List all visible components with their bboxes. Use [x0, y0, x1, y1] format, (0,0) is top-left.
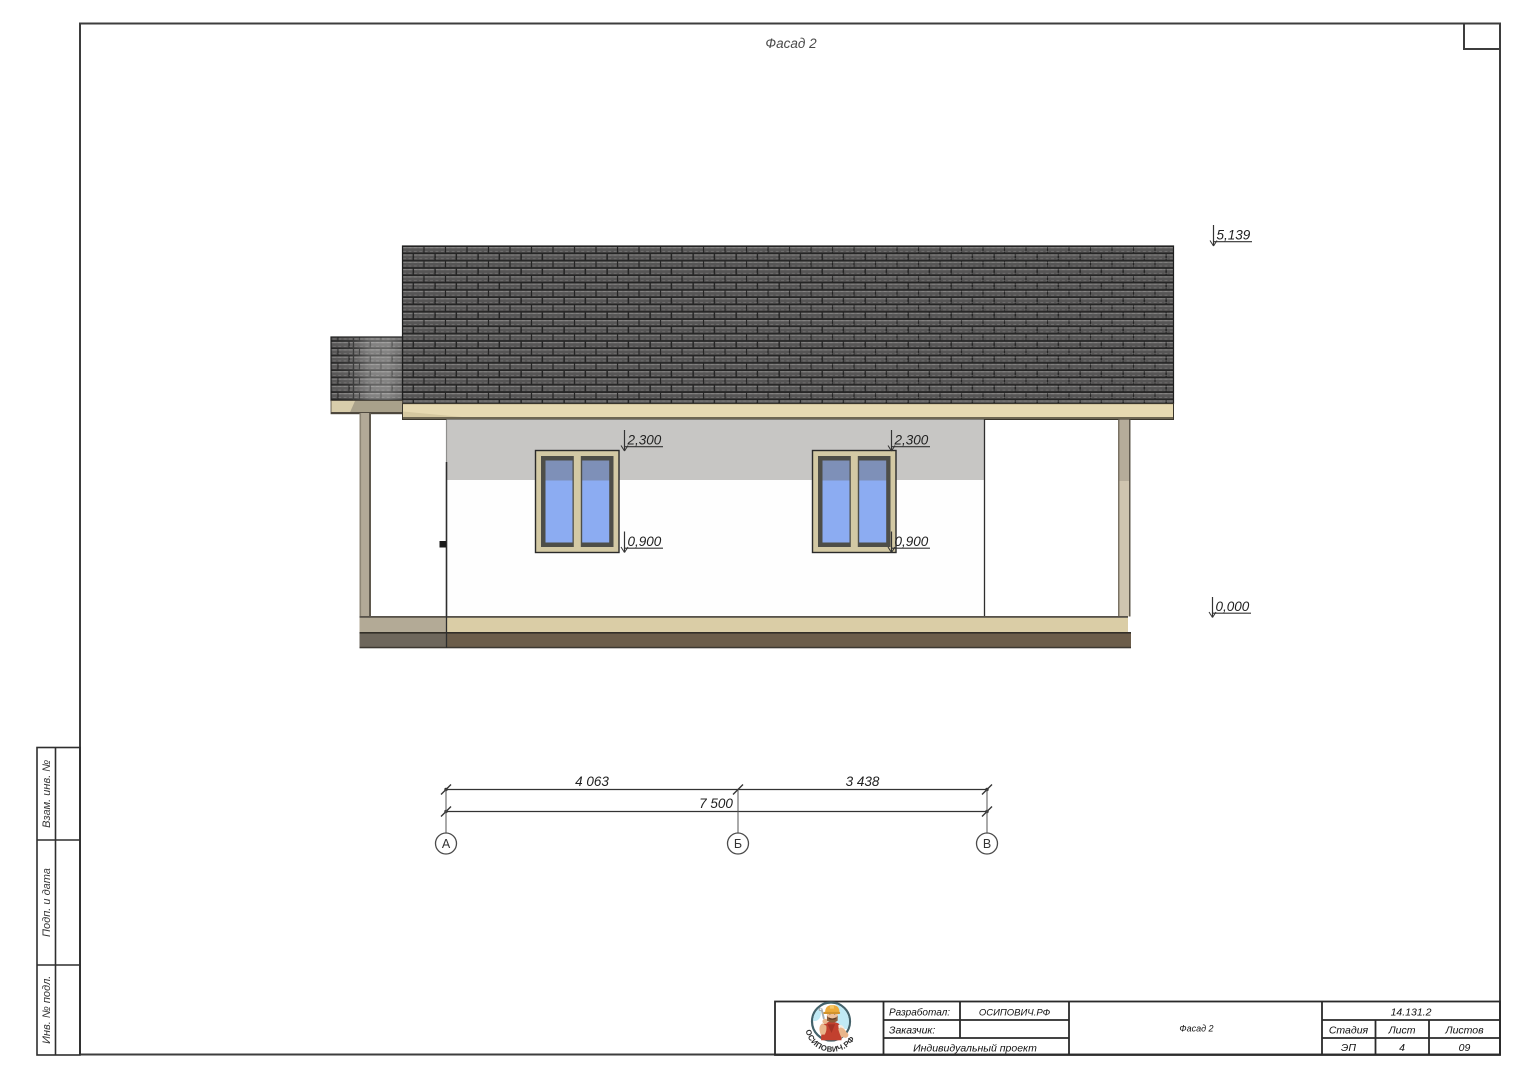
- svg-text:Стадия: Стадия: [1329, 1025, 1369, 1037]
- svg-text:Подп. и дата: Подп. и дата: [41, 868, 53, 937]
- svg-text:5,139: 5,139: [1217, 228, 1251, 243]
- svg-text:Б: Б: [734, 837, 742, 851]
- svg-text:Лист: Лист: [1387, 1025, 1415, 1037]
- svg-text:0,000: 0,000: [1216, 599, 1250, 614]
- svg-text:ОСИПОВИЧ.РФ: ОСИПОВИЧ.РФ: [979, 1008, 1051, 1019]
- svg-text:3 438: 3 438: [846, 774, 880, 789]
- svg-text:Заказчик:: Заказчик:: [889, 1025, 935, 1037]
- svg-text:14.131.2: 14.131.2: [1391, 1007, 1432, 1019]
- svg-text:Разработал:: Разработал:: [889, 1007, 950, 1019]
- svg-text:Инв. № подл.: Инв. № подл.: [41, 976, 53, 1044]
- svg-text:4 063: 4 063: [575, 774, 609, 789]
- svg-text:0,900: 0,900: [895, 534, 929, 549]
- svg-text:09: 09: [1459, 1042, 1471, 1054]
- svg-text:Листов: Листов: [1444, 1025, 1484, 1037]
- svg-text:ЭП: ЭП: [1341, 1042, 1356, 1054]
- svg-text:2,300: 2,300: [627, 433, 662, 448]
- svg-text:Взам. инв. №: Взам. инв. №: [41, 760, 53, 828]
- svg-text:В: В: [983, 837, 991, 851]
- svg-text:А: А: [442, 837, 451, 851]
- svg-text:Фасад 2: Фасад 2: [765, 36, 817, 51]
- svg-text:0,900: 0,900: [628, 534, 662, 549]
- svg-text:Фасад 2: Фасад 2: [1179, 1024, 1213, 1034]
- svg-text:2,300: 2,300: [894, 433, 929, 448]
- svg-text:7 500: 7 500: [699, 796, 733, 811]
- svg-text:Индивидуальный проект: Индивидуальный проект: [913, 1043, 1037, 1055]
- svg-text:4: 4: [1399, 1042, 1405, 1054]
